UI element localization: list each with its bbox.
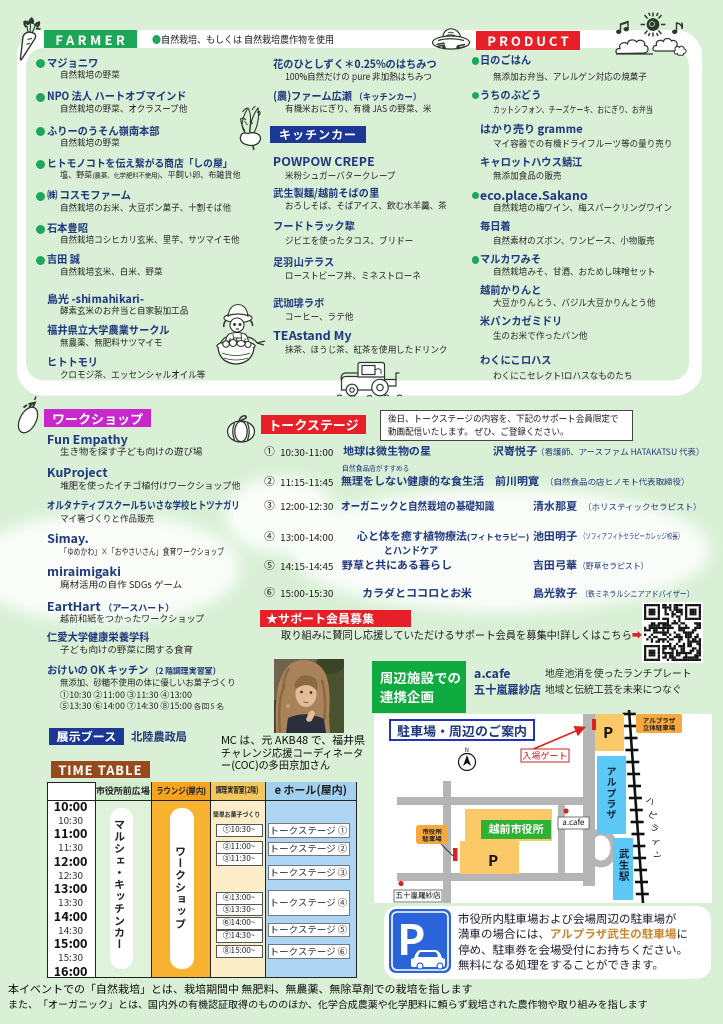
svg-text:N: N [465,745,469,754]
